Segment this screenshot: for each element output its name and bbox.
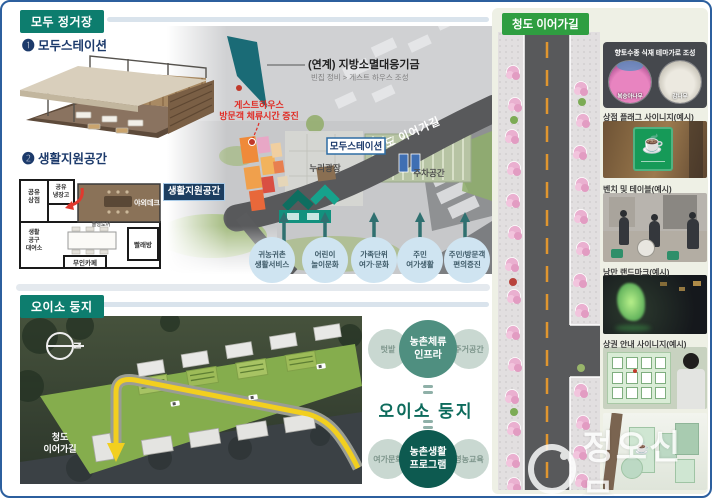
shop-label-1: 공유	[28, 187, 40, 196]
svg-text:N: N	[71, 342, 82, 349]
warm-light	[693, 281, 701, 286]
diagram-dash	[423, 391, 433, 394]
guesthouse-marker	[236, 85, 242, 91]
support-label-box: 생활지원공간	[163, 183, 225, 201]
effect-circle-1: 귀농귀촌 생활서비스	[249, 237, 295, 283]
sign-grid	[607, 352, 671, 404]
life-support-floorplan: 야외데크 공유 상점 공유 냉장고 생활 공구 대여소 무인카페 빨래방 폴딩도…	[16, 168, 164, 272]
effect-3-line1: 가족단위	[360, 250, 388, 260]
person-figure	[687, 219, 699, 249]
glow-reflection	[615, 325, 651, 331]
diagram-dash	[423, 385, 433, 388]
persimmon-tree-label: 감나무	[659, 92, 701, 100]
effect-4-line2: 여가생활	[406, 260, 434, 270]
fund-title: (연계) 지방소멸대응기금	[308, 57, 420, 71]
person-head	[689, 212, 696, 219]
svg-text:게스트하우스: 게스트하우스	[234, 99, 284, 110]
effect-5-line1: 주민/방문객	[449, 250, 486, 260]
tool-label-3: 대여소	[26, 244, 43, 252]
outdoor-deck: 야외데크	[78, 184, 160, 222]
watermark: 정오신문	[528, 420, 710, 498]
bullet-two-icon: ❷	[22, 152, 35, 166]
green-stool	[667, 251, 679, 260]
effect-4-line1: 주민	[413, 250, 427, 260]
glowing-sculpture	[617, 283, 645, 321]
effect-2-line1: 어린이	[315, 250, 336, 260]
deck-label: 야외데크	[134, 198, 160, 207]
warm-light	[660, 282, 667, 286]
effect-circle-3: 가족단위 여가·문화	[351, 237, 397, 283]
svg-text:모두스테이션: 모두스테이션	[330, 141, 382, 153]
fridge-label-2: 냉장고	[53, 191, 70, 199]
parking-label: 주차공간	[413, 168, 444, 178]
section-divider	[16, 284, 490, 291]
row-label-flag: 상점 플래그 사이니지(예시)	[603, 112, 694, 123]
header-line-oiso	[102, 302, 489, 307]
persimmon-tree-photo: 감나무	[659, 61, 701, 103]
item-life-support-label: 생활지원공간	[38, 152, 107, 166]
diagram-top-line1: 농촌체류	[410, 336, 447, 349]
oiso-aerial-view: N 청도 이어가길	[20, 316, 362, 484]
effect-1-line1: 귀농귀촌	[258, 250, 286, 260]
plaza-label: 누리광장	[309, 163, 340, 173]
svg-text:청도: 청도	[52, 431, 69, 442]
item-modu-station: ❶ 모두스테이션	[22, 35, 107, 54]
modu-station-building-render	[18, 50, 220, 148]
bench-table-photo	[603, 193, 707, 262]
street-branch	[570, 325, 600, 377]
peach-tree-photo: 복숭아나무	[609, 61, 651, 103]
effect-circle-4: 주민 여가생활	[397, 237, 443, 283]
diagram-dash	[423, 426, 433, 429]
sky-strip	[617, 61, 643, 71]
row-label-signage: 상권 안내 사이니지(예시)	[603, 339, 686, 350]
diagram-top-circle: 농촌체류 인프라	[399, 320, 457, 378]
item-modu-station-label: 모두스테이션	[38, 39, 107, 53]
effect-5-line2: 편의증진	[453, 260, 481, 270]
person-head	[683, 353, 699, 369]
row-label-landmark: 낭만 랜드마크(예시)	[603, 267, 669, 278]
table	[637, 239, 655, 257]
poster-canvas: 모두 정거장 ❶ 모두스테이션	[0, 0, 712, 498]
person-head	[651, 214, 658, 221]
diagram-bottom-line2: 프로그램	[410, 459, 447, 472]
effect-1-line2: 생활서비스	[255, 260, 290, 270]
section-header-modu: 모두 정거장	[20, 10, 104, 33]
cafe-label: 무인카페	[73, 258, 97, 267]
green-stool	[611, 249, 623, 258]
room-shared-fridge	[48, 180, 74, 204]
tool-label-1: 생활	[28, 228, 40, 236]
diagram-center-title: 오이소 둥지	[356, 397, 496, 422]
clock-logo-icon	[528, 444, 576, 494]
district-signage-photo	[603, 347, 707, 409]
theme-street-title: 향토수종 식재 테마가로 조성	[603, 47, 707, 57]
fridge-label-1: 공유	[55, 183, 67, 191]
warm-light	[679, 287, 685, 291]
station-label-box: 모두스테이션	[327, 138, 385, 154]
fund-subtitle: 빈집 정비 > 게스트 하우스 조성	[311, 72, 409, 82]
diagram-top-line2: 인프라	[414, 349, 442, 362]
bullet-one-icon: ❶	[22, 39, 35, 53]
flag-sign: ☕	[633, 127, 673, 171]
item-life-support: ❷ 생활지원공간	[22, 148, 107, 167]
effect-circle-2: 어린이 놀이문화	[302, 237, 348, 283]
row-label-bench: 벤치 및 테이블(예시)	[603, 184, 672, 195]
person-head	[620, 210, 627, 217]
landmark-photo	[603, 275, 707, 334]
flag-divider	[641, 161, 665, 162]
laundry-label: 빨래방	[134, 240, 152, 249]
flag-signage-photo: ☕	[603, 121, 707, 178]
effect-circle-5: 주민/방문객 편의증진	[444, 237, 490, 283]
watermark-text: 정오신문	[582, 420, 710, 498]
diagram-bottom-line1: 농촌생활	[410, 446, 447, 459]
person-figure	[619, 217, 629, 245]
effect-3-line2: 여가·문화	[359, 260, 389, 270]
panel-header: 청도 이어가길	[502, 13, 589, 35]
peach-tree-label: 복숭아나무	[609, 92, 651, 100]
person-body	[677, 369, 705, 409]
section-header-oiso: 오이소 둥지	[20, 295, 104, 318]
header-line-top	[107, 17, 489, 22]
effect-2-line2: 놀이문화	[311, 260, 339, 270]
coffee-cup-icon: ☕	[642, 134, 664, 154]
photo-shade	[689, 121, 703, 178]
diagram-bottom-circle: 농촌생활 프로그램	[399, 430, 457, 488]
theme-street-box: 향토수종 식재 테마가로 조성 복숭아나무 감나무	[603, 42, 707, 108]
red-dot	[633, 369, 637, 373]
shop-label-2: 상점	[28, 195, 40, 204]
tool-label-2: 공구	[28, 236, 40, 244]
svg-text:이어가길: 이어가길	[43, 443, 76, 454]
folding-door-label: 폴딩도어	[92, 221, 111, 228]
svg-text:방문객 체류시간 증진: 방문객 체류시간 증진	[219, 110, 299, 121]
